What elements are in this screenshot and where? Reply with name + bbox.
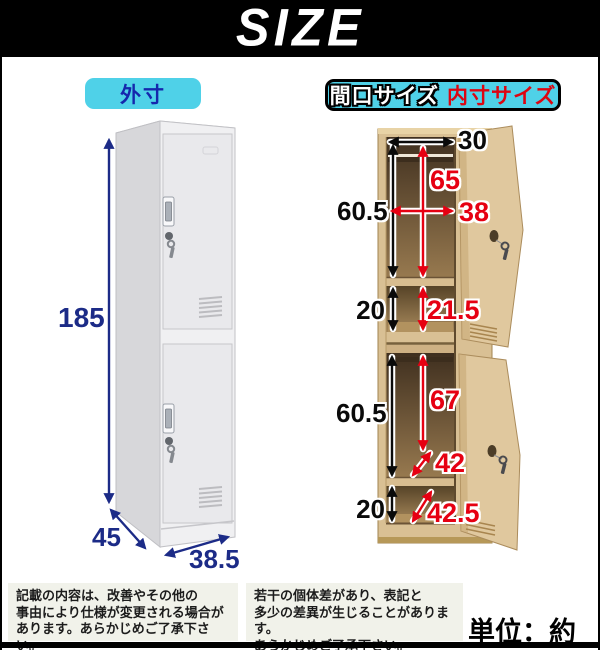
- opening-size-text: 間口サイズ: [330, 80, 439, 110]
- inner-size-text: 内寸サイズ: [447, 80, 556, 110]
- dim-lower-inner-depth: 42: [435, 450, 465, 477]
- gray-upper-door: [163, 134, 232, 329]
- dim-lower-opening-height: 60.5: [336, 400, 384, 426]
- dim-lower-shelf-height: 20: [352, 496, 385, 522]
- note-line: 多少の差異が生じることがあります。: [254, 605, 455, 638]
- gray-lower-handle: [163, 404, 174, 433]
- dim-outer-width: 38.5: [189, 546, 240, 572]
- page-border-bottom: [0, 642, 600, 648]
- inner-size-label: 間口サイズ 内寸サイズ: [325, 79, 561, 111]
- dim-upper-inner-height: 65: [430, 167, 460, 194]
- lower-shelf: [386, 477, 455, 486]
- gray-upper-handle: [163, 197, 174, 226]
- dim-inner-width: 38: [459, 199, 489, 226]
- dim-upper-shelf-height: 20: [352, 297, 385, 323]
- note-line: 事由により仕様が変更される場合が: [16, 605, 230, 622]
- dim-lower-inner-height: 67: [430, 387, 460, 414]
- outer-size-label: 外寸: [85, 78, 201, 109]
- dim-upper-shelf-inner-height: 21.5: [427, 297, 480, 324]
- note-line: 若干の個体差があり、表記と: [254, 588, 455, 605]
- dim-outer-depth: 45: [92, 524, 121, 550]
- size-diagram-page: SIZE: [0, 0, 600, 650]
- page-border-left: [0, 0, 2, 650]
- note-line: 記載の内容は、改善やその他の: [16, 588, 230, 605]
- upper-shelf: [386, 277, 455, 286]
- dim-upper-opening-height: 60.5: [337, 198, 385, 224]
- disclaimer-note-right: 若干の個体差があり、表記と 多少の差異が生じることがあります。 あらかじめご了承…: [246, 583, 463, 641]
- gray-locker: [116, 121, 235, 547]
- disclaimer-note-left: 記載の内容は、改善やその他の 事由により仕様が変更される場合が あります。あらか…: [8, 583, 238, 641]
- dim-top-width: 30: [458, 127, 487, 153]
- dim-outer-height: 185: [58, 304, 104, 332]
- dim-lower-shelf-depth: 42.5: [427, 500, 480, 527]
- outer-size-text: 外寸: [120, 79, 166, 109]
